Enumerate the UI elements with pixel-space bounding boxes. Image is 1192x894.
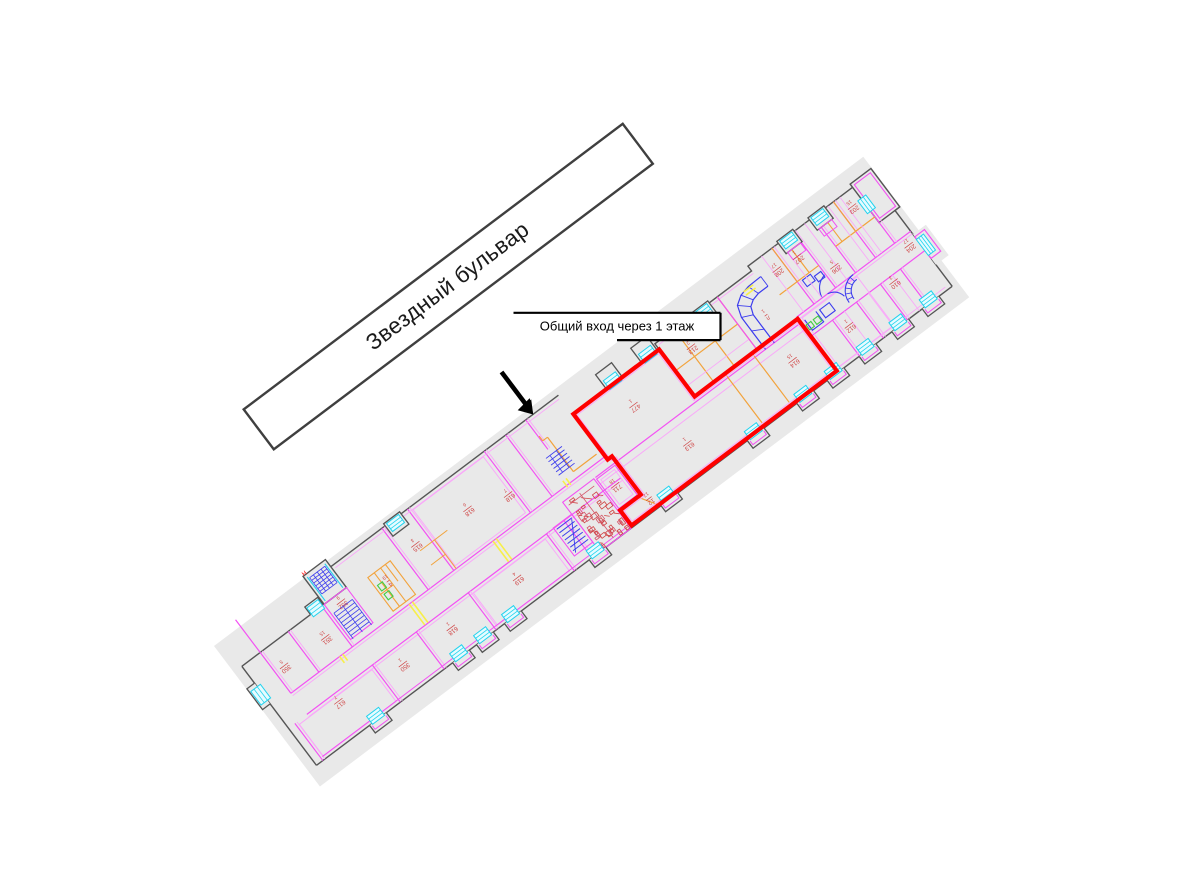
svg-text:Н: Н (300, 569, 307, 576)
svg-text:Звездный бульвар: Звездный бульвар (361, 217, 534, 356)
svg-text:Общий вход через 1 этаж: Общий вход через 1 этаж (540, 319, 695, 334)
